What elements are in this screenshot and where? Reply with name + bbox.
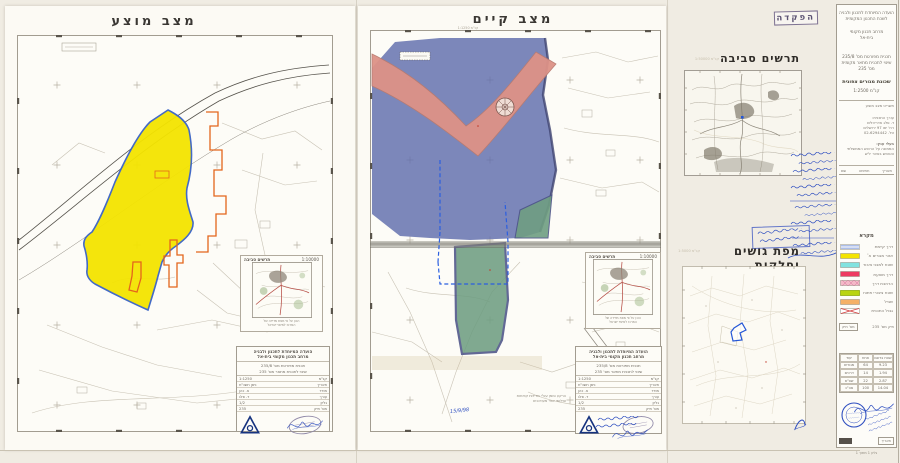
label-box [62, 43, 96, 51]
legend-item-label: שטח ציבורי פתוח [863, 290, 893, 295]
planner-logo [240, 415, 260, 435]
scanned-plan-sheet: מצב מוצע [0, 0, 900, 463]
proposed-title: מצב מוצע [99, 14, 209, 29]
inset-minimap [251, 262, 313, 318]
legend-swatch-road-existing [840, 244, 860, 250]
area-table: שטח בדונם אחוז יעוד 9.23 64 מגורים 1.94 … [839, 353, 894, 393]
sidebar-titleblock: הועדה המיוחדת לתכנון ולבניה לשכת התכנון … [836, 4, 897, 448]
inset-title: תרשים סביבה [244, 257, 270, 262]
legend-swatch-open-space [840, 290, 860, 296]
legend-swatch-path [840, 299, 860, 305]
site-marker [741, 116, 744, 119]
legend: דרך קיימת אזור מגורים א' שטח למבני ציבור… [839, 242, 894, 316]
committee-stamp [286, 413, 326, 437]
sheet-crease [356, 0, 357, 463]
legend-item-label: הרחבת דרך [872, 281, 893, 286]
sheet-existing: מצב קיים קנ"מ 1:1250 [358, 6, 666, 450]
legend-item: שטח למבני ציבור [839, 260, 894, 269]
inset-caption: הוכן על פי מפת מדידה של המרכז למיפוי ישר… [242, 319, 321, 327]
sidebar-region: מרחב תכנון מקומי בית-אל [839, 30, 894, 42]
diagonal-stamp [864, 410, 893, 431]
legend-item-label: שטח למבני ציבור [863, 262, 893, 267]
label-box [400, 52, 430, 60]
legend-item: אזור מגורים א' [839, 251, 894, 260]
titleblock-plan: תכנית מפורטת מס' 235/8 שינוי לתכנית מתאר… [576, 362, 661, 376]
env-diagram-title: תרשים סביבה [718, 52, 800, 65]
legend-item: שביל [839, 297, 894, 306]
sidebar-owners: בעלי ענין: הממונה על הרכוש הממשלתי והנטו… [839, 141, 894, 156]
red-speck [765, 361, 766, 362]
legend-swatch-proposed-road [840, 271, 860, 277]
page-right-edge [898, 0, 899, 463]
sidebar-sheet-label: תשריט מצב מוצע [839, 103, 894, 108]
legend-item-label: דרך קיימת [875, 244, 893, 249]
signature-header-row: תאריך חתימה שם [839, 168, 894, 175]
interchange [496, 98, 514, 116]
legend-title: מקרא [839, 233, 894, 239]
red-speck [489, 269, 491, 271]
legend-item: דרך קיימת [839, 242, 894, 251]
date-box: תאריך [878, 437, 894, 445]
legend-swatch-public-buildings [840, 262, 860, 268]
divider [839, 100, 894, 101]
legend-item-label: גבול התכנית [871, 308, 893, 313]
sidebar-architect: עורך התכנית: ד. פלג אדריכלים רח' יפו 97 … [839, 115, 894, 136]
titleblock-header: הועדה המיוחדת לתכנון ולבניה מרחב תכנון מ… [576, 347, 661, 362]
sidebar-plan-name: שכונת מגורים צפונית [839, 79, 894, 85]
inset-scale: 1:10000 [302, 257, 319, 262]
titleblock-header: הועדה המיוחדת לתכנון ולבניה מרחב תכנון מ… [237, 347, 329, 362]
titleblock-plan: תכנית מפורטת מס' 235/8 שינוי לתכנית מתאר… [237, 362, 329, 376]
page-bottom-edge [0, 450, 860, 451]
approval-stamps [839, 393, 896, 437]
legend-item: הרחבת דרך [839, 279, 894, 288]
sidebar-scale: קנ"מ 1:2500 [839, 89, 894, 95]
barcode-box [839, 438, 852, 444]
sheet-proposed: מצב מוצע [5, 6, 355, 450]
legend-item-label: דרך מוצעת [873, 272, 893, 277]
survey-notes: הרקע סומן עפ"י מדידות קודמות וצילומי אוי… [416, 394, 566, 404]
fold-band [370, 241, 661, 248]
legend-item-label: שביל [884, 299, 893, 304]
legend-item: דרך מוצעת [839, 270, 894, 279]
handwritten-approval [585, 414, 660, 442]
legend-item: גבול התכנית [839, 306, 894, 315]
sheet-crease [667, 0, 668, 463]
bottom-boxes: תאריך [839, 437, 894, 445]
red-speck [477, 125, 479, 127]
legend-swatch-residential [840, 253, 860, 259]
existing-title: מצב קיים [458, 12, 568, 27]
legend-swatch-plan-boundary [840, 308, 860, 314]
deposit-stamp: הפקדה [774, 10, 818, 25]
sheet-footer-note: גליון 1 מתוך 1 [836, 451, 897, 455]
legend-swatch-road-widening [840, 280, 860, 286]
proposed-titleblock: הועדה המיוחדת לתכנון ולבניה מרחב תכנון מ… [236, 346, 330, 432]
env-diagram-scale: קנ"מ 1:50000 [683, 57, 719, 61]
divider [839, 165, 894, 166]
proposed-inset: תרשים סביבה 1:10000 הוכן על פי מפת מדידה… [240, 255, 323, 332]
inset-minimap [592, 259, 654, 315]
file-box: מס' תיק [839, 323, 858, 331]
titleblock-stamps [237, 412, 329, 438]
sidebar-plan-number: תכנית מפורטת מס' 235/8 שינוי לתכנית מתאר… [839, 55, 894, 72]
inset-caption: הוכן על פי מפת מדידה של המרכז למיפוי ישר… [587, 316, 659, 324]
legend-item: שטח ציבורי פתוח [839, 288, 894, 297]
file-text: תיק מס' 235 [872, 324, 894, 329]
inset-title: תרשים סביבה [589, 254, 615, 259]
blue-ink-mark [792, 414, 808, 432]
parcels-grid-map [682, 266, 806, 424]
file-number-row: תיק מס' 235 מס' תיק [839, 323, 894, 331]
legend-item-label: אזור מגורים א' [867, 253, 893, 258]
tan-wash [372, 356, 542, 370]
inset-scale: 1:10000 [640, 254, 657, 259]
sidebar-agency: הועדה המיוחדת לתכנון ולבניה לשכת התכנון … [839, 11, 894, 23]
existing-zone-green [455, 243, 508, 354]
existing-inset: תרשים סביבה 1:10000 הוכן על פי מפת מדידה… [585, 252, 661, 329]
parcels-map-scale: קנ"מ 1:5000 [666, 249, 700, 253]
